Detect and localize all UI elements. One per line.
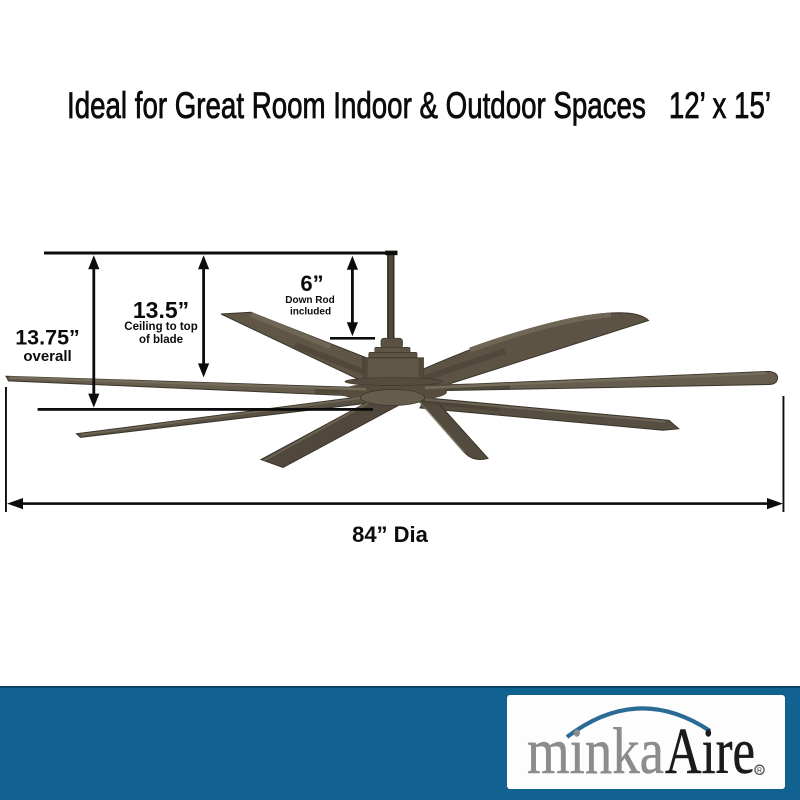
svg-text:overall: overall: [23, 348, 71, 365]
svg-text:Down Rod: Down Rod: [285, 295, 334, 306]
svg-text:6”: 6”: [300, 271, 323, 296]
svg-text:Ideal for Great Room Indoor &: Ideal for Great Room Indoor & Outdoor Sp…: [67, 85, 771, 126]
svg-text:R: R: [757, 768, 762, 775]
svg-text:84” Dia: 84” Dia: [352, 522, 429, 547]
svg-text:of blade: of blade: [139, 334, 183, 346]
svg-text:13.75”: 13.75”: [15, 326, 80, 350]
svg-text:minka: minka: [527, 715, 664, 788]
svg-text:Aire: Aire: [665, 715, 755, 788]
svg-text:13.5”: 13.5”: [133, 297, 189, 323]
svg-text:included: included: [290, 307, 331, 318]
svg-text:Ceiling to top: Ceiling to top: [124, 321, 197, 333]
